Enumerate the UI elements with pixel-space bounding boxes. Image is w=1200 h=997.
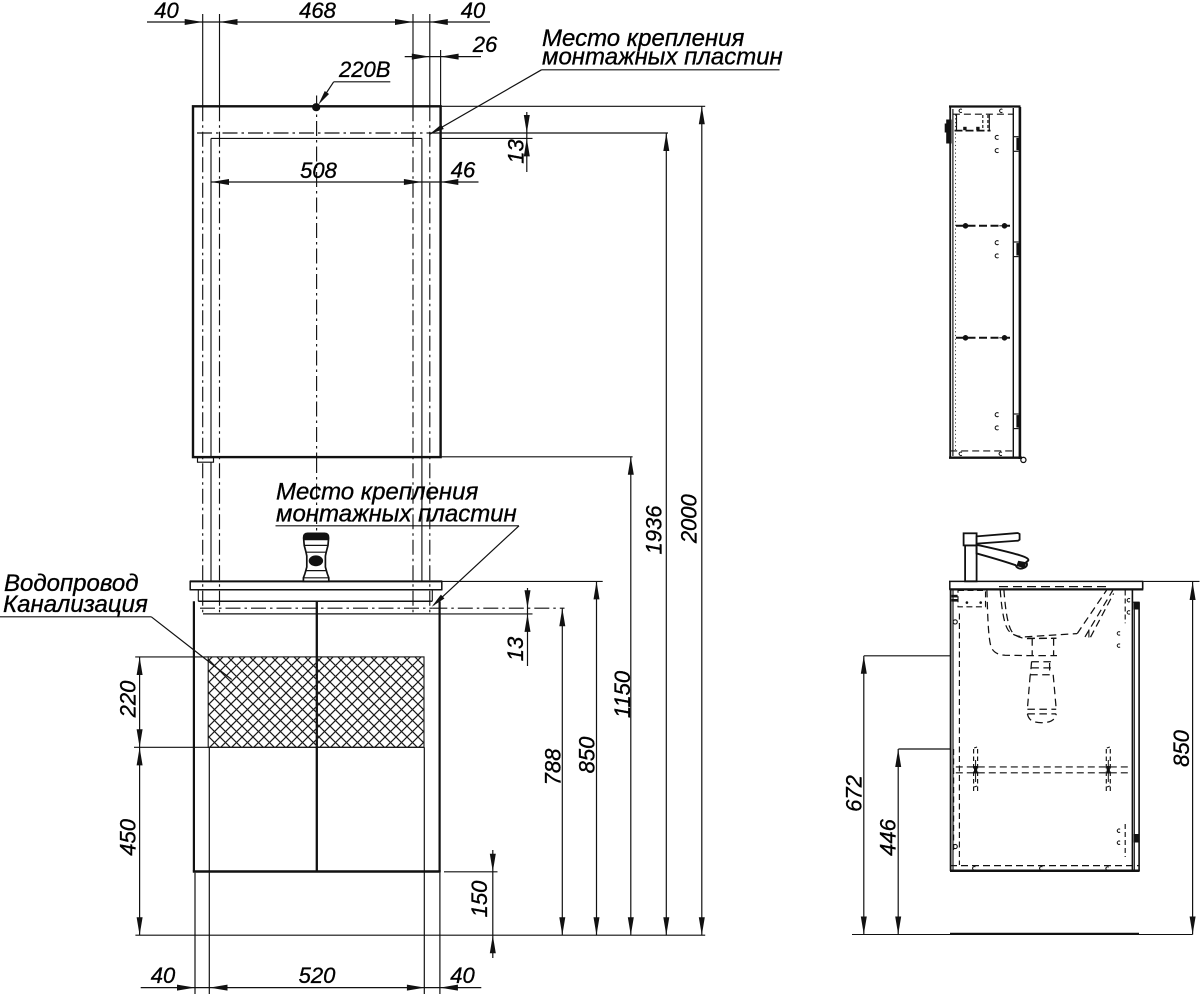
svg-text:850: 850 — [1169, 729, 1194, 766]
svg-text:40: 40 — [461, 0, 486, 23]
svg-text:1936: 1936 — [642, 505, 667, 555]
svg-text:672: 672 — [842, 775, 867, 812]
svg-text:520: 520 — [299, 963, 336, 988]
svg-text:40: 40 — [450, 963, 475, 988]
svg-text:468: 468 — [299, 0, 336, 23]
svg-text:150: 150 — [467, 880, 492, 917]
svg-text:2000: 2000 — [677, 493, 702, 544]
svg-text:850: 850 — [575, 736, 600, 773]
svg-text:40: 40 — [154, 0, 179, 23]
svg-text:46: 46 — [451, 158, 476, 183]
svg-text:446: 446 — [876, 818, 901, 855]
svg-text:450: 450 — [116, 818, 141, 855]
svg-text:26: 26 — [472, 32, 498, 57]
svg-text:13: 13 — [503, 636, 528, 661]
svg-text:508: 508 — [300, 158, 337, 183]
svg-text:1150: 1150 — [610, 670, 635, 718]
svg-text:Канализация: Канализация — [3, 591, 148, 618]
svg-text:13: 13 — [504, 139, 529, 164]
svg-text:788: 788 — [541, 748, 566, 785]
svg-text:220: 220 — [116, 680, 141, 718]
svg-text:220В: 220В — [338, 57, 390, 82]
svg-text:40: 40 — [151, 963, 176, 988]
svg-text:монтажных пластин: монтажных пластин — [276, 500, 517, 527]
svg-text:монтажных пластин: монтажных пластин — [542, 44, 783, 71]
